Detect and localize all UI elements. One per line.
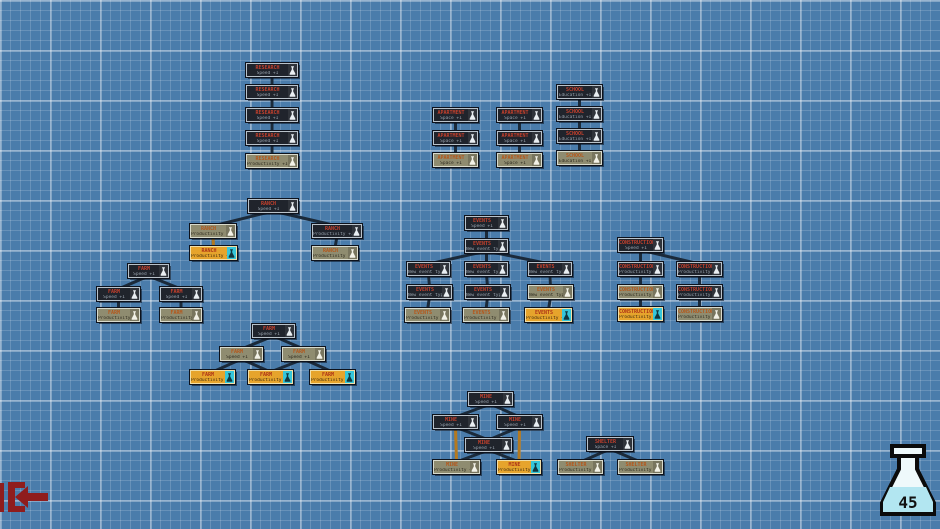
flask-cost-icon	[563, 286, 572, 298]
node-sub: New event type	[529, 270, 562, 275]
node-sub: Speed +1	[440, 423, 462, 428]
node-sub: Productivity +10%	[313, 232, 352, 237]
node-text: RANCHProductivity +10%	[313, 225, 352, 237]
flask-cost-icon	[531, 461, 540, 473]
node-sub: Space +1	[440, 161, 462, 166]
tech-node-c5[interactable]: CONSTRUCTIONProductivity +10%	[677, 262, 722, 276]
node-text: FARMSpeed +1	[253, 325, 285, 337]
node-text: SHELTERProductivity +10%	[559, 461, 593, 473]
flask-cost-icon	[468, 109, 477, 121]
flask-cost-icon	[532, 154, 541, 166]
node-sub: Education +1	[559, 137, 592, 142]
node-sub: Productivity +25%	[191, 254, 227, 259]
node-sub: New event type	[529, 293, 563, 298]
exit-edge-strip	[0, 483, 4, 512]
node-sub: Productivity +10%	[619, 270, 653, 275]
node-text: APARTMENTSpace +1	[434, 154, 468, 166]
node-text: EVENTSNew event type	[466, 286, 500, 298]
node-text: FARMSpeed +1	[98, 288, 130, 300]
tech-node-m5[interactable]: MINEProductivity +25%	[433, 460, 480, 474]
flask-cost-icon	[712, 308, 721, 320]
tree-edge	[519, 427, 520, 462]
node-text: FARMProductivity +25%	[191, 371, 225, 383]
node-text: APARTMENTSpace +1	[498, 109, 532, 121]
node-text: CONSTRUCTIONProductivity +25%	[619, 308, 653, 320]
node-sub: Speed +1	[625, 246, 647, 251]
tech-node-rc5[interactable]: RANCHProductivity +10%	[312, 246, 358, 260]
flask-cost-icon	[288, 64, 297, 76]
tech-node-r1[interactable]: RESEARCHSpeed +1	[246, 63, 298, 77]
tech-node-r3[interactable]: RESEARCHSpeed +1	[246, 108, 298, 122]
tech-node-s2[interactable]: SCHOOLEducation +1	[557, 107, 602, 121]
node-text: FARMSpeed +1	[129, 265, 159, 277]
flask-cost-icon	[440, 263, 449, 275]
node-sub: Productivity +25%	[619, 315, 653, 320]
tech-node-g1[interactable]: FARMSpeed +1	[252, 324, 295, 338]
node-text: CONSTRUCTIONProductivity +10%	[678, 263, 712, 275]
node-text: FARMProductivity +25%	[311, 371, 345, 383]
flask-cost-icon	[470, 461, 479, 473]
tech-node-rc1[interactable]: RANCHSpeed +1	[248, 199, 298, 213]
node-sub: Space +1	[595, 445, 617, 450]
flask-cost-icon	[225, 371, 234, 383]
node-sub: Productivity +10%	[247, 162, 288, 167]
tech-node-e4[interactable]: EVENTSNew event type	[465, 262, 508, 276]
flask-cost-icon	[499, 309, 508, 321]
flask-cost-icon	[226, 225, 235, 237]
node-text: CONSTRUCTIONProductivity +10%	[678, 286, 712, 298]
tech-node-sh1[interactable]: SHELTERSpace +1	[587, 437, 633, 451]
node-sub: Speed +1	[103, 295, 125, 300]
tech-node-e8[interactable]: EVENTSNew event type	[528, 285, 573, 299]
node-sub: Space +1	[504, 116, 526, 121]
tech-node-rc2[interactable]: RANCHProductivity +10%	[190, 224, 236, 238]
flask-cost-icon	[285, 325, 294, 337]
node-text: MINEProductivity +25%	[498, 461, 531, 473]
node-sub: New event type	[408, 270, 440, 275]
flask-cost-icon	[468, 416, 477, 428]
node-text: EVENTSNew event type	[529, 263, 562, 275]
tech-node-f4[interactable]: FARMProductivity +10%	[97, 308, 140, 322]
node-text: EVENTSNew event type	[466, 240, 498, 252]
flask-cost-icon	[192, 309, 201, 321]
flask-cost-icon	[623, 438, 632, 450]
node-text: FARMSpeed +1	[221, 348, 253, 360]
flask-cost-icon	[562, 263, 571, 275]
flask-cost-icon	[498, 217, 507, 229]
node-sub: Productivity +25%	[191, 378, 225, 383]
science-count: 45	[898, 493, 917, 512]
tech-node-c7[interactable]: CONSTRUCTIONProductivity +10%	[677, 307, 722, 321]
node-sub: New event type	[466, 247, 498, 252]
flask-cost-icon	[498, 240, 507, 252]
node-text: MINESpeed +1	[498, 416, 532, 428]
tech-node-m2[interactable]: MINESpeed +1	[433, 415, 478, 429]
flask-cost-icon	[498, 263, 507, 275]
node-text: FARMSpeed +1	[161, 288, 192, 300]
tech-node-rc4[interactable]: RANCHProductivity +10%	[312, 224, 362, 238]
tree-edge	[456, 427, 457, 462]
tech-node-g6[interactable]: FARMProductivity +25%	[310, 370, 355, 384]
node-sub: Productivity +10%	[191, 232, 226, 237]
tech-node-m3[interactable]: MINESpeed +1	[497, 415, 542, 429]
flask-cost-icon	[500, 286, 509, 298]
tech-node-f3[interactable]: FARMSpeed +1	[160, 287, 202, 301]
tech-node-f5[interactable]: FARMProductivity +10%	[160, 308, 202, 322]
node-sub: Education +1	[559, 115, 592, 120]
node-text: CONSTRUCTIONProductivity +10%	[619, 286, 653, 298]
node-text: APARTMENTSpace +1	[434, 109, 468, 121]
flask-cost-icon	[562, 309, 571, 321]
node-sub: Speed +1	[475, 400, 497, 405]
tech-node-g5[interactable]: FARMProductivity +25%	[248, 370, 293, 384]
node-sub: Education +1	[559, 93, 592, 98]
node-text: CONSTRUCTIONSpeed +1	[619, 239, 653, 251]
flask-cost-icon	[532, 109, 541, 121]
flask-cost-icon	[192, 288, 201, 300]
tech-node-g4[interactable]: FARMProductivity +25%	[190, 370, 235, 384]
flask-cost-icon	[315, 348, 324, 360]
tech-node-e9[interactable]: EVENTSProductivity +10%	[405, 308, 450, 322]
flask-cost-icon	[653, 461, 662, 473]
exit-bracket-arrow-icon	[6, 481, 50, 513]
flask-cost-icon	[130, 288, 139, 300]
tech-node-s3[interactable]: SCHOOLEducation +1	[557, 129, 602, 143]
flask-cost-icon	[592, 86, 601, 98]
flask-cost-icon	[502, 439, 511, 451]
tech-node-m6[interactable]: MINEProductivity +25%	[497, 460, 541, 474]
node-sub: New event type	[408, 293, 442, 298]
node-text: APARTMENTSpace +1	[434, 132, 468, 144]
flask-cost-icon	[653, 239, 662, 251]
flask-cost-icon	[288, 200, 297, 212]
node-sub: Productivity +10%	[678, 293, 712, 298]
flask-cost-icon	[592, 108, 601, 120]
node-text: RESEARCHSpeed +1	[247, 109, 288, 121]
flask-cost-icon	[593, 461, 602, 473]
tech-node-g2[interactable]: FARMSpeed +1	[220, 347, 263, 361]
flask-cost-icon	[468, 154, 477, 166]
node-text: FARMProductivity +25%	[249, 371, 283, 383]
flask-cost-icon	[288, 155, 297, 167]
flask-cost-icon	[440, 309, 449, 321]
node-text: MINEProductivity +25%	[434, 461, 470, 473]
node-sub: Education +1	[559, 159, 592, 164]
node-text: RESEARCHSpeed +1	[247, 64, 288, 76]
node-sub: Productivity +10%	[406, 316, 440, 321]
node-text: RESEARCHSpeed +1	[247, 132, 288, 144]
flask-cost-icon	[653, 286, 662, 298]
node-sub: Productivity +10%	[98, 316, 130, 321]
node-sub: New event type	[466, 293, 500, 298]
flask-cost-icon	[442, 286, 451, 298]
tech-node-f2[interactable]: FARMSpeed +1	[97, 287, 140, 301]
node-sub: Productivity +10%	[161, 316, 192, 321]
research-tree-screen: 45 RESEARCHSpeed +1RESEARCHSpeed +1RESEA…	[0, 0, 940, 529]
tech-node-c2[interactable]: CONSTRUCTIONProductivity +10%	[618, 262, 663, 276]
node-text: EVENTSProductivity +10%	[464, 309, 499, 321]
node-sub: Speed +1	[257, 116, 279, 121]
tech-node-r2[interactable]: RESEARCHSpeed +1	[246, 85, 298, 99]
flask-cost-icon	[227, 247, 236, 259]
node-sub: Space +1	[504, 161, 526, 166]
node-text: RANCHProductivity +25%	[191, 247, 227, 259]
flask-cost-icon	[130, 309, 139, 321]
tech-node-r4[interactable]: RESEARCHSpeed +1	[246, 131, 298, 145]
node-text: MINESpeed +1	[469, 393, 503, 405]
flask-cost-icon	[592, 130, 601, 142]
node-text: EVENTSProductivity +10%	[406, 309, 440, 321]
tech-node-g3[interactable]: FARMSpeed +1	[282, 347, 325, 361]
node-sub: New event type	[466, 270, 498, 275]
node-text: APARTMENTSpace +1	[498, 132, 532, 144]
flask-cost-icon	[352, 225, 361, 237]
tech-node-s1[interactable]: SCHOOLEducation +1	[557, 85, 602, 99]
flask-cost-icon	[345, 371, 354, 383]
flask-cost-icon	[503, 393, 512, 405]
tech-node-m4[interactable]: MINESpeed +1	[465, 438, 512, 452]
node-text: FARMSpeed +1	[283, 348, 315, 360]
tech-node-c6[interactable]: CONSTRUCTIONProductivity +10%	[677, 285, 722, 299]
node-text: MINESpeed +1	[466, 439, 502, 451]
flask-cost-icon	[653, 308, 662, 320]
tech-node-a2[interactable]: APARTMENTSpace +1	[433, 131, 478, 145]
node-sub: Productivity +10%	[464, 316, 499, 321]
tech-node-s4[interactable]: SCHOOLEducation +1	[557, 151, 602, 165]
tech-node-sh2[interactable]: SHELTERProductivity +10%	[558, 460, 603, 474]
flask-cost-icon	[159, 265, 168, 277]
flask-cost-icon	[283, 371, 292, 383]
tech-node-r5[interactable]: RESEARCHProductivity +10%	[246, 154, 298, 168]
node-text: RANCHProductivity +10%	[313, 247, 348, 259]
tech-node-f1[interactable]: FARMSpeed +1	[128, 264, 169, 278]
node-sub: Speed +1	[257, 139, 279, 144]
flask-cost-icon	[712, 286, 721, 298]
node-text: RESEARCHSpeed +1	[247, 86, 288, 98]
flask-cost-icon	[532, 416, 541, 428]
science-flask-icon: 45	[877, 444, 939, 520]
tech-node-e6[interactable]: EVENTSNew event type	[407, 285, 452, 299]
flask-cost-icon	[288, 109, 297, 121]
tech-node-a1[interactable]: APARTMENTSpace +1	[433, 108, 478, 122]
flask-cost-icon	[468, 132, 477, 144]
node-sub: Speed +1	[473, 446, 495, 451]
node-text: RANCHSpeed +1	[249, 200, 288, 212]
science-flask-hud: 45	[877, 444, 939, 524]
tech-node-rc3[interactable]: RANCHProductivity +25%	[190, 246, 237, 260]
node-text: SCHOOLEducation +1	[558, 130, 592, 142]
node-sub: Productivity +25%	[498, 468, 531, 473]
node-sub: Productivity +10%	[313, 254, 348, 259]
node-sub: Speed +1	[166, 295, 188, 300]
node-sub: Space +1	[440, 139, 462, 144]
node-sub: Speed +1	[471, 224, 493, 229]
node-text: EVENTSNew event type	[529, 286, 563, 298]
tech-node-m1[interactable]: MINESpeed +1	[468, 392, 513, 406]
tech-node-e1[interactable]: EVENTSSpeed +1	[465, 216, 508, 230]
node-text: EVENTSProductivity +25%	[526, 309, 562, 321]
node-text: EVENTSNew event type	[466, 263, 498, 275]
flask-cost-icon	[288, 86, 297, 98]
node-sub: Productivity +10%	[619, 468, 653, 473]
node-sub: Productivity +25%	[249, 378, 283, 383]
tech-node-a3[interactable]: APARTMENTSpace +1	[433, 153, 478, 167]
node-sub: Productivity +25%	[526, 316, 562, 321]
tech-node-e10[interactable]: EVENTSProductivity +10%	[463, 308, 509, 322]
flask-cost-icon	[532, 132, 541, 144]
node-text: EVENTSNew event type	[408, 263, 440, 275]
flask-cost-icon	[653, 263, 662, 275]
node-text: SHELTERSpace +1	[588, 438, 623, 450]
node-text: MINESpeed +1	[434, 416, 468, 428]
node-sub: Speed +1	[288, 355, 310, 360]
flask-cost-icon	[348, 247, 357, 259]
node-text: SCHOOLEducation +1	[558, 86, 592, 98]
node-text: RESEARCHProductivity +10%	[247, 155, 288, 167]
tech-node-e2[interactable]: EVENTSNew event type	[465, 239, 508, 253]
tech-node-b3[interactable]: APARTMENTSpace +1	[497, 153, 542, 167]
node-sub: Speed +1	[258, 332, 280, 337]
node-text: APARTMENTSpace +1	[498, 154, 532, 166]
flask-cost-icon	[712, 263, 721, 275]
node-text: SCHOOLEducation +1	[558, 152, 592, 164]
tech-node-b2[interactable]: APARTMENTSpace +1	[497, 131, 542, 145]
node-text: CONSTRUCTIONProductivity +10%	[619, 263, 653, 275]
node-sub: Productivity +10%	[678, 315, 712, 320]
node-text: RANCHProductivity +10%	[191, 225, 226, 237]
tech-node-e5[interactable]: EVENTSNew event type	[528, 262, 572, 276]
node-text: FARMProductivity +10%	[161, 309, 192, 321]
node-sub: Speed +1	[504, 423, 526, 428]
node-text: SHELTERProductivity +10%	[619, 461, 653, 473]
node-sub: Speed +1	[258, 207, 280, 212]
tech-node-e3[interactable]: EVENTSNew event type	[407, 262, 450, 276]
node-sub: Speed +1	[257, 71, 279, 76]
node-sub: Productivity +10%	[678, 270, 712, 275]
node-sub: Productivity +25%	[434, 468, 470, 473]
node-sub: Speed +1	[226, 355, 248, 360]
tech-node-c3[interactable]: CONSTRUCTIONProductivity +10%	[618, 285, 663, 299]
node-sub: Space +1	[440, 116, 462, 121]
node-text: CONSTRUCTIONProductivity +10%	[678, 308, 712, 320]
node-text: EVENTSNew event type	[408, 286, 442, 298]
exit-button[interactable]	[6, 481, 50, 517]
flask-cost-icon	[592, 152, 601, 164]
node-text: FARMProductivity +10%	[98, 309, 130, 321]
node-sub: Speed +1	[133, 272, 155, 277]
flask-cost-icon	[288, 132, 297, 144]
node-sub: Speed +1	[257, 93, 279, 98]
node-text: EVENTSSpeed +1	[466, 217, 498, 229]
tech-node-sh3[interactable]: SHELTERProductivity +10%	[618, 460, 663, 474]
tech-node-e7[interactable]: EVENTSNew event type	[465, 285, 510, 299]
node-sub: Space +1	[504, 139, 526, 144]
node-sub: Productivity +10%	[619, 293, 653, 298]
node-text: SCHOOLEducation +1	[558, 108, 592, 120]
node-sub: Productivity +10%	[559, 468, 593, 473]
node-sub: Productivity +25%	[311, 378, 345, 383]
tech-node-c1[interactable]: CONSTRUCTIONSpeed +1	[618, 238, 663, 252]
tech-node-c4[interactable]: CONSTRUCTIONProductivity +25%	[618, 307, 663, 321]
flask-cost-icon	[253, 348, 262, 360]
tech-node-e11[interactable]: EVENTSProductivity +25%	[525, 308, 572, 322]
tech-node-b1[interactable]: APARTMENTSpace +1	[497, 108, 542, 122]
